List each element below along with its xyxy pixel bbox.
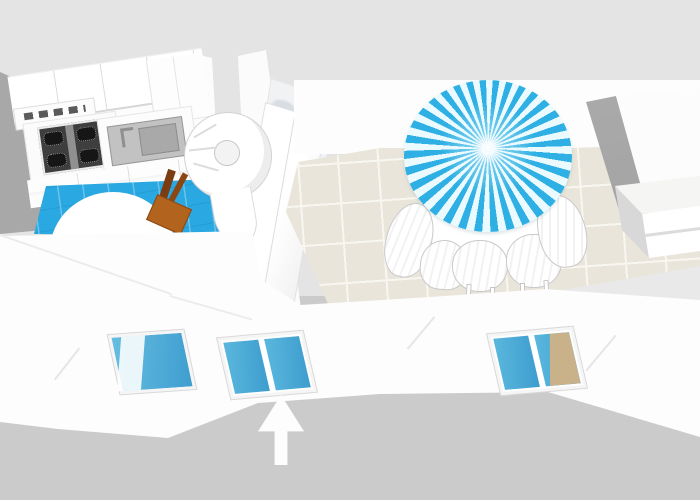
gas-cooktop: [37, 119, 107, 175]
spiral-staircase-hub: [214, 140, 240, 166]
burner-icon: [43, 130, 65, 147]
burner-icon: [46, 152, 68, 169]
window-pane: [493, 336, 540, 390]
window-double-right: [487, 327, 587, 396]
window-pane: [264, 336, 311, 390]
floorplan-3d-viewport[interactable]: [0, 0, 700, 500]
spiral-staircase: [184, 106, 274, 248]
window-tan-reflection: [534, 332, 581, 386]
window-double-center: [217, 331, 317, 400]
sink-basin: [138, 123, 180, 156]
dining-chair: [452, 240, 508, 292]
umbrella-pole-tip: [485, 145, 491, 151]
striped-patio-umbrella: [404, 80, 572, 232]
burner-icon: [75, 126, 97, 143]
window-open-sash: [117, 335, 145, 391]
faucet-icon: [120, 127, 136, 148]
window-pane: [223, 340, 270, 394]
window-small-casement: [108, 330, 196, 395]
window-pane: [534, 332, 581, 386]
burner-icon: [78, 147, 100, 164]
